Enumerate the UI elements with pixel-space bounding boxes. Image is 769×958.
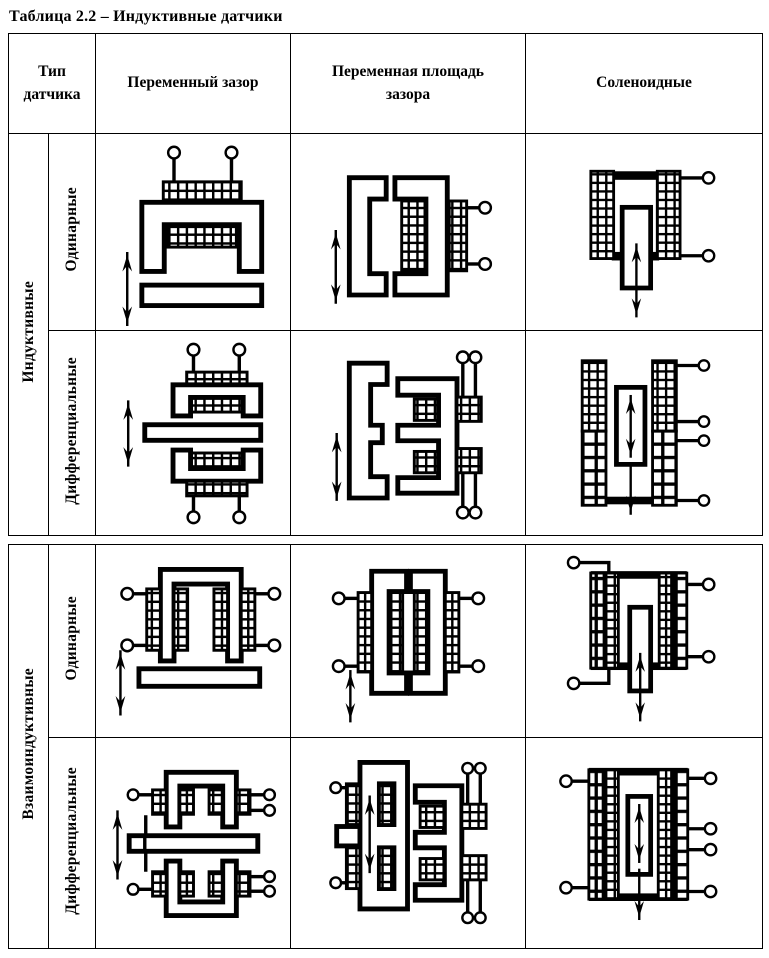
cell-inductive-differential-variable-area bbox=[291, 331, 526, 536]
motion-arrow bbox=[123, 400, 133, 466]
diagram-mutual-single-solenoid bbox=[528, 550, 760, 733]
diagram-mutual-differential-solenoid bbox=[528, 743, 760, 943]
cell-mutual-single-variable-area bbox=[291, 545, 526, 738]
cell-mutual-differential-variable-gap bbox=[96, 738, 291, 949]
diagram-inductive-single-solenoid bbox=[528, 139, 760, 325]
diagram-inductive-differential-variable-gap bbox=[98, 334, 288, 533]
cell-inductive-differential-variable-gap bbox=[96, 331, 291, 536]
diagram-inductive-differential-variable-area bbox=[294, 334, 522, 532]
cell-mutual-single-solenoid bbox=[526, 545, 763, 738]
motion-arrow bbox=[331, 230, 341, 304]
motion-arrow bbox=[113, 810, 123, 879]
cell-mutual-differential-solenoid bbox=[526, 738, 763, 949]
group-label-text: Взаимоиндуктивные bbox=[20, 668, 38, 820]
header-variable-gap-col: Переменный зазор bbox=[96, 34, 291, 134]
document-page: Таблица 2.2 – Индуктивные датчики Тип да… bbox=[0, 0, 769, 953]
motion-arrow bbox=[116, 650, 126, 715]
motion-arrow bbox=[122, 251, 132, 325]
cell-inductive-single-solenoid bbox=[526, 134, 763, 331]
header-type-col: Тип датчика bbox=[9, 34, 96, 134]
subtype-label-text: Одинарные bbox=[63, 187, 81, 272]
subtype-label-text: Дифференциальные bbox=[63, 767, 81, 915]
sensors-table-part-1: Тип датчика Переменный зазор Переменная … bbox=[8, 33, 763, 536]
subtype-label-differential: Дифференциальные bbox=[49, 331, 96, 536]
subtype-label-single: Одинарные bbox=[49, 134, 96, 331]
subtype-label-single: Одинарные bbox=[49, 545, 96, 738]
sensors-table-part-2: Взаимоиндуктивные Одинарные bbox=[8, 544, 763, 949]
group-label-inductive: Индуктивные bbox=[9, 134, 49, 536]
group-label-mutual-inductive: Взаимоиндуктивные bbox=[9, 545, 49, 949]
cell-mutual-differential-variable-area bbox=[291, 738, 526, 949]
cell-mutual-single-variable-gap bbox=[96, 545, 291, 738]
diagram-mutual-single-variable-area bbox=[294, 548, 522, 734]
table-title: Таблица 2.2 – Индуктивные датчики bbox=[9, 8, 762, 26]
subtype-label-differential: Дифференциальные bbox=[49, 738, 96, 949]
diagram-mutual-single-variable-gap bbox=[98, 548, 288, 735]
cell-inductive-single-variable-gap bbox=[96, 134, 291, 331]
cell-inductive-differential-solenoid bbox=[526, 331, 763, 536]
subtype-label-text: Одинарные bbox=[63, 596, 81, 681]
cell-inductive-single-variable-area bbox=[291, 134, 526, 331]
motion-arrow bbox=[332, 433, 342, 501]
group-label-text: Индуктивные bbox=[20, 281, 38, 383]
motion-arrow bbox=[346, 670, 356, 722]
diagram-mutual-differential-variable-area bbox=[294, 741, 522, 945]
diagram-inductive-single-variable-area bbox=[294, 137, 522, 327]
header-solenoid-col: Соленоидные bbox=[526, 34, 763, 134]
header-variable-area-col: Переменная площадь зазора bbox=[291, 34, 526, 134]
diagram-mutual-differential-variable-gap bbox=[98, 741, 288, 946]
subtype-label-text: Дифференциальные bbox=[63, 357, 81, 505]
diagram-inductive-differential-solenoid bbox=[528, 336, 760, 530]
diagram-inductive-single-variable-gap bbox=[98, 137, 288, 328]
